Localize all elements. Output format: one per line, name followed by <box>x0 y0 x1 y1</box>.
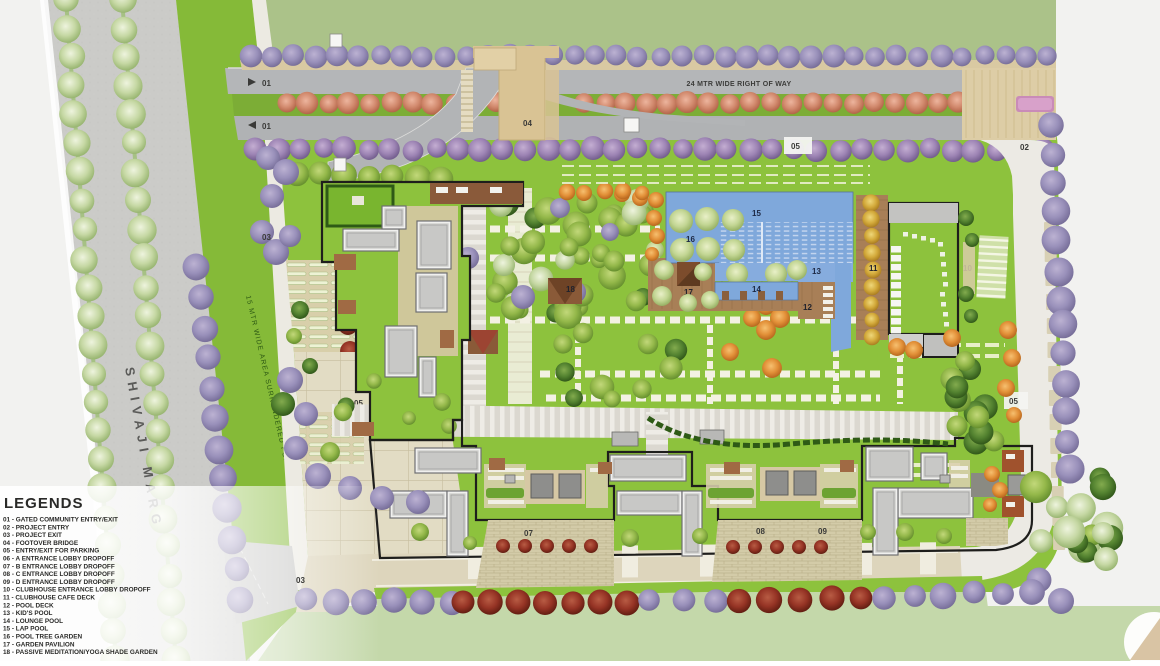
svg-text:05: 05 <box>791 142 800 151</box>
svg-text:03: 03 <box>296 576 305 585</box>
svg-text:01: 01 <box>262 122 271 131</box>
svg-text:15 - LAP POOL: 15 - LAP POOL <box>3 626 48 633</box>
svg-text:13: 13 <box>812 267 821 276</box>
svg-text:07: 07 <box>524 529 533 538</box>
svg-text:17 - GARDEN PAVILION: 17 - GARDEN PAVILION <box>3 641 75 648</box>
svg-text:14 - LOUNGE POOL: 14 - LOUNGE POOL <box>3 618 63 625</box>
svg-text:08: 08 <box>756 527 765 536</box>
svg-text:01: 01 <box>262 79 271 88</box>
svg-text:08 - C ENTRANCE LOBBY DROPOFF: 08 - C ENTRANCE LOBBY DROPOFF <box>3 571 115 578</box>
svg-text:02 - PROJECT ENTRY: 02 - PROJECT ENTRY <box>3 524 70 531</box>
svg-text:15: 15 <box>752 209 761 218</box>
svg-text:13 - KID'S POOL: 13 - KID'S POOL <box>3 610 53 617</box>
svg-text:03 - PROJECT EXIT: 03 - PROJECT EXIT <box>3 532 62 539</box>
svg-text:18 - PASSIVE MEDITATION/YOGA S: 18 - PASSIVE MEDITATION/YOGA SHADE GARDE… <box>3 649 158 656</box>
svg-text:01 - GATED COMMUNITY ENTRY/EXI: 01 - GATED COMMUNITY ENTRY/EXIT <box>3 517 118 524</box>
svg-text:04 - FOOTOVER BRIDGE: 04 - FOOTOVER BRIDGE <box>3 540 79 547</box>
svg-text:12: 12 <box>803 303 812 312</box>
svg-text:16 - POOL TREE GARDEN: 16 - POOL TREE GARDEN <box>3 634 82 641</box>
svg-text:09: 09 <box>818 527 827 536</box>
svg-text:10 - CLUBHOUSE ENTRANCE LOBBY: 10 - CLUBHOUSE ENTRANCE LOBBY DROPOFF <box>3 587 151 594</box>
svg-text:11 - CLUBHOUSE CAFE DECK: 11 - CLUBHOUSE CAFE DECK <box>3 595 95 602</box>
svg-text:05 - ENTRY/EXIT FOR PARKING: 05 - ENTRY/EXIT FOR PARKING <box>3 548 99 555</box>
svg-text:09 - D ENTRANCE LOBBY DROPOFF: 09 - D ENTRANCE LOBBY DROPOFF <box>3 579 115 586</box>
svg-text:05: 05 <box>1009 397 1018 406</box>
svg-text:06 - A ENTRANCE LOBBY DROPOFF: 06 - A ENTRANCE LOBBY DROPOFF <box>3 556 114 563</box>
svg-text:11: 11 <box>869 264 878 273</box>
svg-text:04: 04 <box>523 119 532 128</box>
svg-text:07 - B ENTRANCE LOBBY DROPOFF: 07 - B ENTRANCE LOBBY DROPOFF <box>3 563 115 570</box>
svg-text:LEGENDS: LEGENDS <box>4 495 84 512</box>
svg-text:14: 14 <box>752 285 761 294</box>
svg-text:12 - POOL DECK: 12 - POOL DECK <box>3 602 54 609</box>
svg-text:18: 18 <box>566 285 575 294</box>
svg-text:24 MTR WIDE RIGHT OF WAY: 24 MTR WIDE RIGHT OF WAY <box>687 81 792 88</box>
svg-text:16: 16 <box>686 235 695 244</box>
svg-text:03: 03 <box>262 233 271 242</box>
